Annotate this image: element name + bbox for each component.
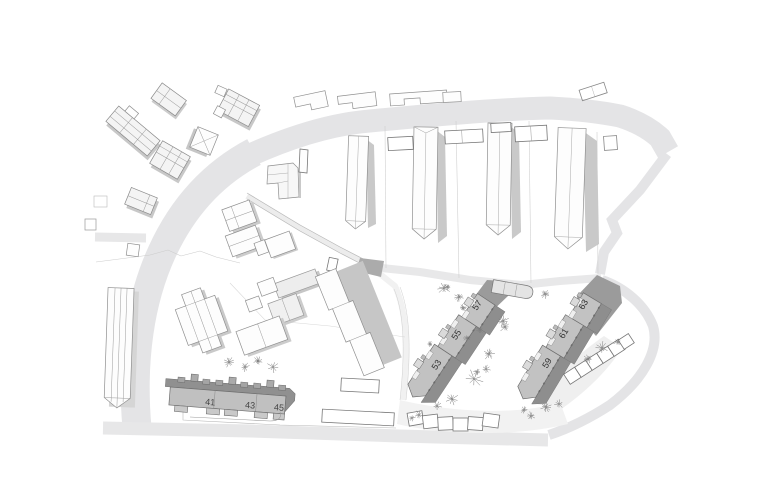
svg-text:41: 41: [205, 397, 216, 408]
svg-text:43: 43: [245, 400, 256, 411]
svg-text:45: 45: [274, 402, 285, 413]
